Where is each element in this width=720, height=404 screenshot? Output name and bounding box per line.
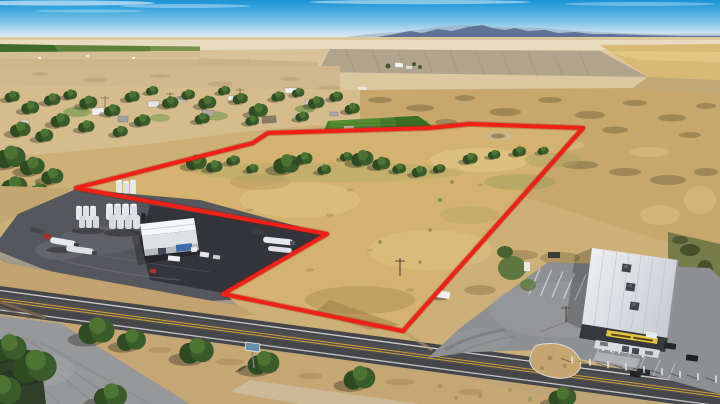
store-roof xyxy=(582,248,678,338)
aerial-photo: Aerial drone photo of rural land parcel … xyxy=(0,0,720,404)
far-farmland xyxy=(0,37,720,95)
distant-green-field xyxy=(0,44,58,52)
black-tank xyxy=(141,213,146,224)
parcel-pond-spot xyxy=(482,131,514,141)
sign-panel xyxy=(245,342,260,352)
small-sign xyxy=(524,262,530,271)
aerial-photo-canvas: Aerial drone photo of rural land parcel … xyxy=(0,0,720,404)
tanks-behind-line xyxy=(116,180,136,195)
